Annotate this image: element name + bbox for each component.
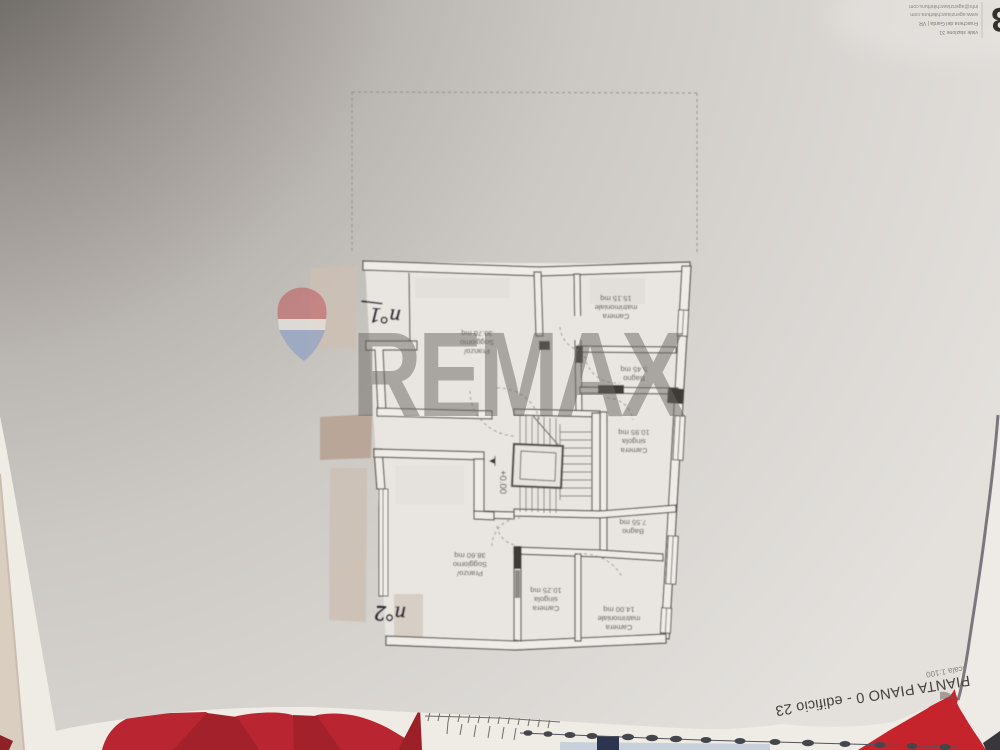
- svg-text:Camera: Camera: [532, 604, 560, 613]
- svg-text:Bagno: Bagno: [622, 527, 644, 536]
- svg-text:3: 3: [991, 0, 1000, 38]
- svg-text:15.15 mq: 15.15 mq: [600, 294, 631, 303]
- svg-text:www.agenziaarchitettura.com: www.agenziaarchitettura.com: [910, 11, 978, 17]
- svg-text:Pranzo/: Pranzo/: [456, 569, 483, 578]
- svg-text:+0.00: +0.00: [497, 470, 508, 494]
- svg-text:matrimoniale: matrimoniale: [598, 614, 641, 623]
- svg-text:singola: singola: [533, 595, 558, 604]
- svg-text:Soggiorno: Soggiorno: [453, 560, 487, 569]
- svg-text:info@agenziaarchitettura.com: info@agenziaarchitettura.com: [909, 3, 978, 9]
- svg-text:Camera: Camera: [620, 446, 648, 455]
- svg-text:Fraschera del Garda | VR: Fraschera del Garda | VR: [919, 20, 978, 26]
- svg-text:viale stazione 31: viale stazione 31: [939, 29, 978, 35]
- svg-text:10.25 mq: 10.25 mq: [530, 586, 561, 595]
- svg-text:38.60 mq: 38.60 mq: [454, 551, 485, 560]
- svg-text:7.55 mq: 7.55 mq: [619, 518, 646, 527]
- svg-text:n°2: n°2: [375, 601, 407, 627]
- svg-text:14.00 mq: 14.00 mq: [603, 605, 634, 614]
- svg-text:Camera: Camera: [605, 623, 633, 632]
- svg-text:REMAX: REMAX: [352, 308, 685, 443]
